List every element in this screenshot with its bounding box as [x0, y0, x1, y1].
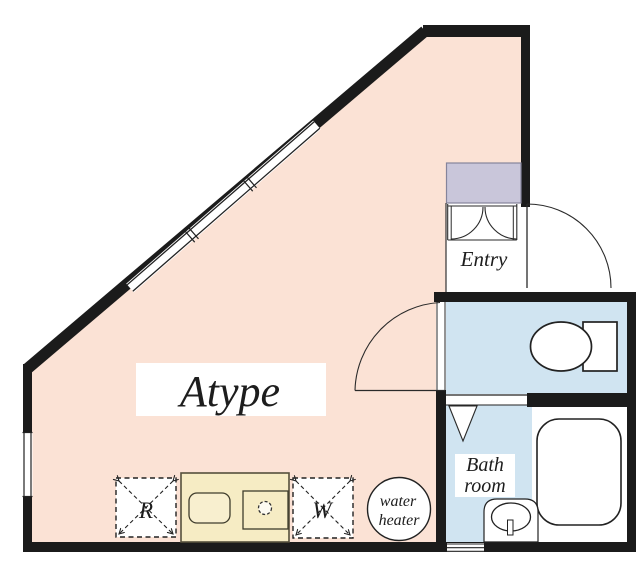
bathtub-icon	[537, 419, 621, 525]
entry-label: Entry	[460, 247, 508, 271]
wash-basin-icon	[484, 499, 538, 542]
wall-interior-vertical	[436, 390, 446, 542]
washing-machine-space: W	[293, 478, 353, 538]
entry-closet	[447, 163, 522, 203]
unit-name-text: Atype	[177, 367, 280, 416]
water-heater: water heater	[368, 478, 431, 541]
wall-bottom	[23, 542, 636, 552]
wall-wc-bath-divider	[527, 393, 636, 407]
wall-wet-top	[434, 292, 636, 302]
wall-right-upper	[521, 25, 530, 207]
bath-label-line1: Bath	[466, 454, 504, 476]
toilet-bowl	[531, 322, 592, 371]
floor-plan-page: Entry Bath room	[0, 0, 640, 572]
kitchen-sink-icon	[189, 493, 230, 523]
stove-burner-icon	[259, 502, 272, 515]
bath-room-label: Bath room	[455, 454, 515, 497]
bath-label-line2: room	[464, 475, 505, 497]
toilet-icon	[531, 322, 618, 371]
floor-plan-svg: Entry Bath room	[0, 0, 640, 572]
washing-machine-label: W	[312, 498, 333, 523]
wall-top	[423, 25, 530, 37]
refrigerator-space: R	[116, 478, 176, 537]
wall-right-lower	[627, 292, 636, 552]
unit-name-label: Atype	[136, 363, 326, 416]
water-heater-label-line2: heater	[379, 512, 421, 529]
bath-window	[447, 543, 484, 552]
bath-sliding-door	[446, 395, 527, 405]
left-window	[23, 432, 33, 497]
basin-faucet	[508, 520, 514, 535]
water-heater-label-line1: water	[380, 493, 417, 510]
kitchen-counter	[181, 473, 289, 542]
refrigerator-label: R	[138, 498, 153, 523]
